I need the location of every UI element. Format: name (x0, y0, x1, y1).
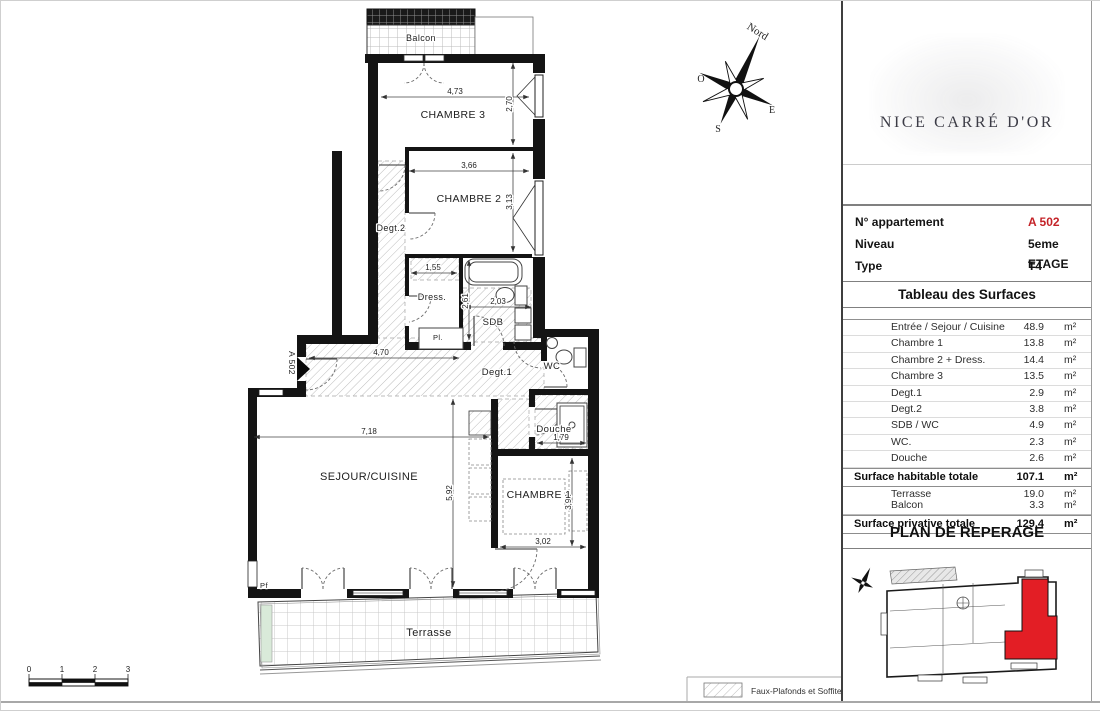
planter-strip (261, 605, 272, 662)
scale-bar: 0 1 2 3 (27, 665, 131, 686)
kitchen-duct (469, 411, 491, 435)
room-label-douche: Douche (536, 424, 571, 435)
compass-west-label: O (697, 74, 704, 85)
level-label: Niveau (855, 234, 894, 254)
habitable-total-row: Surface habitable totale107.1m² (843, 468, 1091, 487)
divider (843, 204, 1091, 206)
annex-rows: Terrasse19.0m² Balcon3.3m² (843, 487, 1091, 515)
table-row: Chambre 2 + Dress.14.4m² (843, 353, 1091, 369)
legend-hatch-swatch (704, 683, 742, 697)
plan-sheet: Balcon Terrasse (0, 0, 1100, 711)
legend: Faux-Plafonds et Soffites (687, 677, 841, 702)
table-row: Balcon3.3m² (843, 500, 1091, 511)
dim-2-61: 2,61 (461, 293, 470, 309)
compass-south-label: S (715, 124, 721, 135)
room-label-sejour: SEJOUR/CUISINE (320, 471, 418, 483)
terrace: Terrasse (258, 593, 601, 674)
walls (248, 54, 599, 598)
room-label-wc: WC (544, 361, 561, 372)
table-row: Chambre 313.5m² (843, 369, 1091, 385)
divider (843, 307, 1091, 308)
room-label-pf: Pf (260, 581, 268, 590)
room-label-degt1: Degt.1 (482, 367, 512, 378)
mini-hatch-strip (890, 567, 957, 584)
divider (843, 548, 1091, 549)
bed-outline (503, 479, 565, 534)
room-label-dress: Dress. (418, 292, 446, 302)
sdb-toilet-tank (515, 286, 527, 305)
sheet-border-bottom (1, 701, 1100, 703)
dim-3-13: 3,13 (505, 194, 514, 210)
floor-plan: Balcon Terrasse (1, 1, 841, 710)
table-row: Douche2.6m² (843, 451, 1091, 467)
divider (843, 164, 1091, 165)
info-row-apartment: N° appartement A 502 (843, 212, 1091, 232)
dim-3-02: 3,02 (535, 537, 551, 546)
room-label-chambre2: CHAMBRE 2 (437, 193, 502, 205)
dim-7-18: 7,18 (361, 427, 377, 436)
wc-toilet-tank (574, 348, 586, 367)
surfaces-heading: Tableau des Surfaces (843, 287, 1091, 302)
type-value: T4 (1028, 256, 1042, 276)
surfaces-table: Entrée / Sejour / Cuisine48.9m² Chambre … (843, 319, 1091, 534)
room-label-degt2: Degt.2 (377, 223, 406, 233)
dim-4-73: 4,73 (447, 87, 463, 96)
room-label-chambre3: CHAMBRE 3 (421, 109, 486, 121)
table-row: SDB / WC4.9m² (843, 418, 1091, 434)
room-label-pl: Pl. (433, 333, 443, 342)
balcony: Balcon (367, 9, 533, 57)
info-row-type: Type T4 (843, 256, 1091, 276)
legend-label: Faux-Plafonds et Soffites (751, 686, 841, 696)
wc-basin (547, 338, 558, 349)
reperage-heading: PLAN DE REPERAGE (843, 524, 1091, 541)
dim-3-66: 3,66 (461, 161, 477, 170)
divider (843, 281, 1091, 282)
apartment-tag: A 502 (287, 351, 297, 375)
scale-3: 3 (126, 665, 131, 674)
table-row: WC.2.3m² (843, 435, 1091, 451)
locator-plan (843, 551, 1091, 699)
info-row-level: Niveau 5eme ETAGE (843, 234, 1091, 254)
table-row: Degt.23.8m² (843, 402, 1091, 418)
kitchen-unit (469, 439, 491, 465)
type-label: Type (855, 256, 882, 276)
dim-5-92: 5,92 (445, 485, 454, 501)
room-label-sdb: SDB (483, 317, 504, 328)
dim-1-55: 1,55 (425, 263, 441, 272)
dim-2-03: 2,03 (490, 297, 506, 306)
dim-4-70: 4,70 (373, 348, 389, 357)
scale-0: 0 (27, 665, 32, 674)
project-title: NICE CARRÉ D'OR (843, 114, 1091, 132)
room-label-chambre1: CHAMBRE 1 (507, 489, 572, 501)
compass-east-label: E (769, 105, 775, 116)
table-row: Degt.12.9m² (843, 386, 1091, 402)
apartment-value: A 502 (1028, 212, 1060, 232)
mini-compass-icon (847, 562, 881, 598)
dim-2-70: 2,70 (505, 96, 514, 112)
table-row: Chambre 113.8m² (843, 336, 1091, 352)
room-label-terrasse: Terrasse (406, 627, 451, 639)
title-block-panel: NICE CARRÉ D'OR N° appartement A 502 Niv… (841, 1, 1092, 701)
compass-rose-icon: Nord O E S (684, 20, 796, 140)
sdb-vanity (515, 308, 531, 323)
logo-watermark (871, 35, 1063, 153)
scale-2: 2 (93, 665, 98, 674)
scale-1: 1 (60, 665, 65, 674)
table-row: Terrasse19.0m² (843, 489, 1091, 500)
table-row: Entrée / Sejour / Cuisine48.9m² (843, 320, 1091, 336)
apartment-label: N° appartement (855, 212, 944, 232)
room-label-balcon: Balcon (406, 33, 436, 43)
